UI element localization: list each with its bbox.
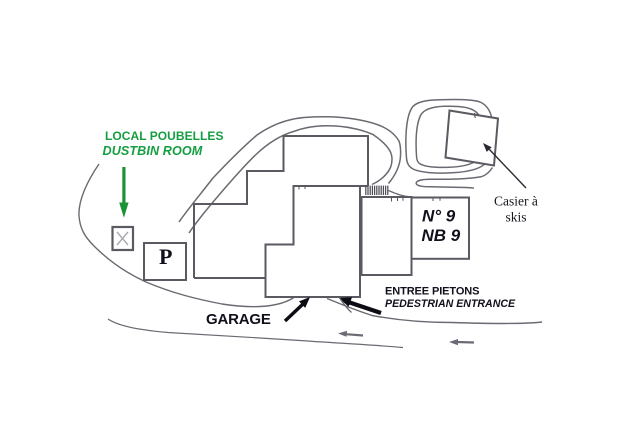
svg-text:LOCAL POUBELLES: LOCAL POUBELLES bbox=[105, 129, 224, 143]
svg-text:P: P bbox=[159, 244, 172, 269]
svg-text:skis: skis bbox=[506, 210, 527, 225]
svg-text:N° 9: N° 9 bbox=[422, 207, 456, 226]
svg-text:DUSTBIN ROOM: DUSTBIN ROOM bbox=[103, 144, 203, 158]
svg-text:Casier à: Casier à bbox=[494, 194, 538, 209]
svg-text:ENTREE PIETONS: ENTREE PIETONS bbox=[385, 286, 479, 298]
svg-text:NB 9: NB 9 bbox=[422, 226, 461, 245]
svg-text:GARAGE: GARAGE bbox=[206, 311, 271, 328]
svg-text:PEDESTRIAN ENTRANCE: PEDESTRIAN ENTRANCE bbox=[385, 298, 516, 310]
